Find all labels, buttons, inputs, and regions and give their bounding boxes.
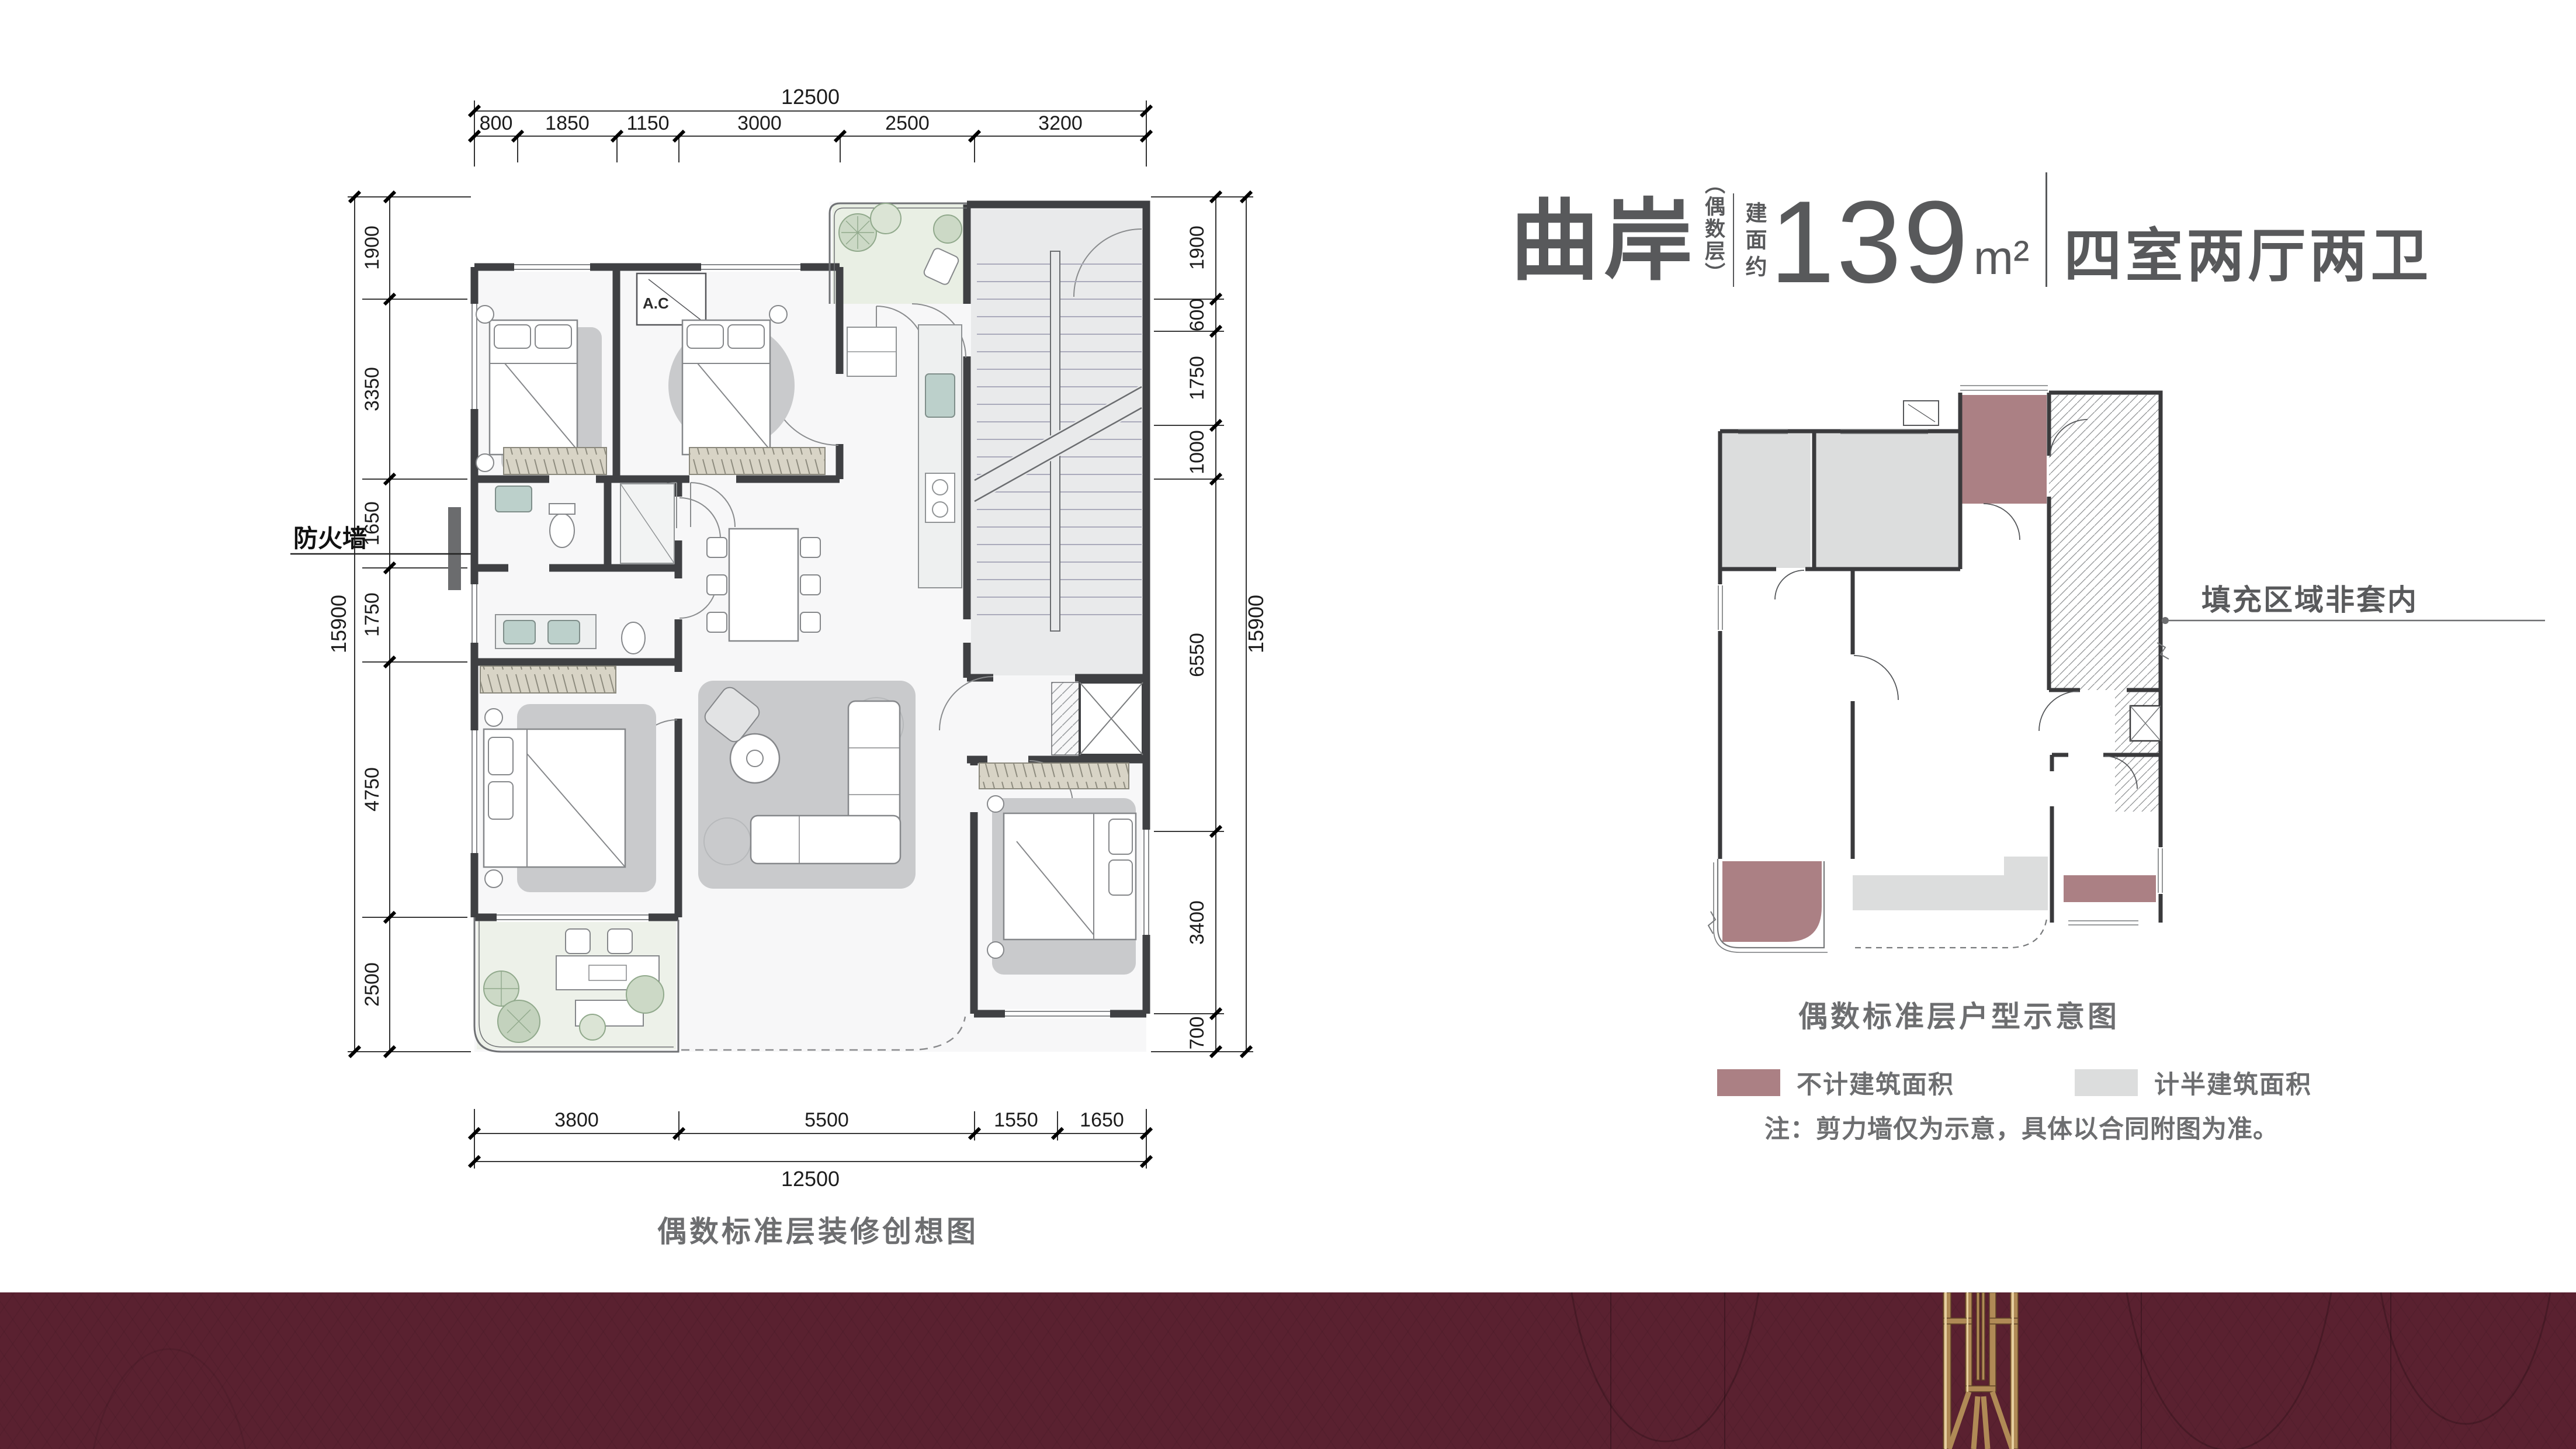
dim-label: 15900 [1244, 595, 1268, 653]
schematic-ac-box [1904, 401, 1939, 425]
title-block: 曲岸 （偶数层） 建面约 139 m² 四室两厅两卫 [1510, 172, 2432, 287]
dim-label: 1650 [1080, 1109, 1124, 1131]
dim-label: 600 [1186, 299, 1208, 332]
dim-label: 15900 [327, 595, 351, 653]
firewall-label: 防火墙 [293, 525, 367, 552]
floor-tag: （偶数层） [1703, 174, 1724, 285]
dim-label: 1900 [361, 226, 383, 270]
dim-label: 1850 [545, 112, 590, 134]
fill-area-callout: 填充区域非套内 [2162, 584, 2545, 624]
dim-label: 3400 [1186, 900, 1208, 945]
dim-label: 3350 [361, 367, 383, 411]
dim-labels-top: 12500 800 1850 1150 3000 2500 3200 [480, 85, 1083, 134]
dim-labels-bottom: 3800 5500 1550 1650 12500 [554, 1109, 1124, 1191]
legend-swatch-half-area [2075, 1069, 2138, 1096]
rooms-layout: 四室两厅两卫 [2064, 228, 2432, 283]
dim-label: 1750 [361, 592, 383, 637]
dim-label: 2500 [361, 962, 383, 1007]
area-unit: m² [1974, 234, 2030, 282]
dim-label: 12500 [781, 85, 840, 109]
bottom-banner [0, 1292, 2576, 1449]
dim-label: 5500 [805, 1109, 849, 1131]
banner-seams [1611, 1292, 2391, 1449]
plan-name: 曲岸 [1510, 196, 1697, 287]
legend-label-half-area: 计半建筑面积 [2154, 1065, 2312, 1101]
dim-label: 2500 [885, 112, 930, 134]
dining-set [707, 529, 820, 641]
dim-label: 1000 [1186, 430, 1208, 474]
dim-label: 4750 [361, 767, 383, 812]
dim-label: 12500 [781, 1167, 840, 1191]
dim-label: 3200 [1038, 112, 1083, 134]
dim-label: 700 [1186, 1017, 1208, 1050]
staircase [975, 251, 1142, 631]
no-area-fill [1960, 395, 2047, 504]
area-value: 139 [1770, 198, 1970, 287]
schematic-elevator [2130, 706, 2161, 741]
gold-sculpture [1943, 1292, 2018, 1449]
schematic-floor-plan: 填充区域非套内 [1683, 362, 2576, 1040]
stairwell-hatch [2049, 395, 2161, 690]
dim-label: 1550 [994, 1109, 1038, 1131]
dim-label: 1750 [1186, 356, 1208, 400]
schematic-caption: 偶数标准层户型示意图 [1798, 993, 2120, 1035]
elevator [1052, 682, 1143, 755]
half-area-fill [1853, 857, 2048, 910]
title-divider-1 [1733, 193, 1734, 287]
dim-label: 1150 [626, 112, 669, 134]
dim-labels-right: 15900 1900 600 1750 1000 6550 3400 700 [1186, 226, 1268, 1049]
dim-label: 800 [480, 112, 513, 134]
dim-label: 6550 [1186, 633, 1208, 677]
callout-label: 填充区域非套内 [2201, 584, 2418, 616]
legend-swatch-no-area [1717, 1069, 1780, 1096]
schematic-fills [1720, 395, 2161, 942]
banner-decor [0, 1292, 2576, 1449]
dim-label: 3800 [554, 1109, 599, 1131]
banner-arc-pattern [93, 1292, 2550, 1449]
main-floor-plan: 12500 800 1850 1150 3000 2500 3200 3800 … [0, 0, 1402, 1274]
legend: 不计建筑面积 计半建筑面积 [1717, 1065, 2312, 1101]
dim-label: 1900 [1186, 226, 1208, 270]
title-divider-2 [2045, 172, 2047, 287]
ac-label: A.C [643, 294, 669, 312]
disclaimer-note: 注：剪力墙仅为示意，具体以合同附图为准。 [1764, 1109, 2279, 1145]
living-room-furniture [698, 681, 916, 889]
bedroom1-furniture [476, 306, 606, 474]
ac-unit: A.C [637, 273, 706, 325]
dim-label: 3000 [737, 112, 782, 134]
firewall-stub [448, 507, 461, 590]
legend-label-no-area: 不计建筑面积 [1797, 1065, 1954, 1101]
main-plan-caption: 偶数标准层装修创想图 [657, 1215, 979, 1248]
page: 12500 800 1850 1150 3000 2500 3200 3800 … [0, 0, 2576, 1449]
area-prefix: 建面约 [1743, 202, 1765, 282]
